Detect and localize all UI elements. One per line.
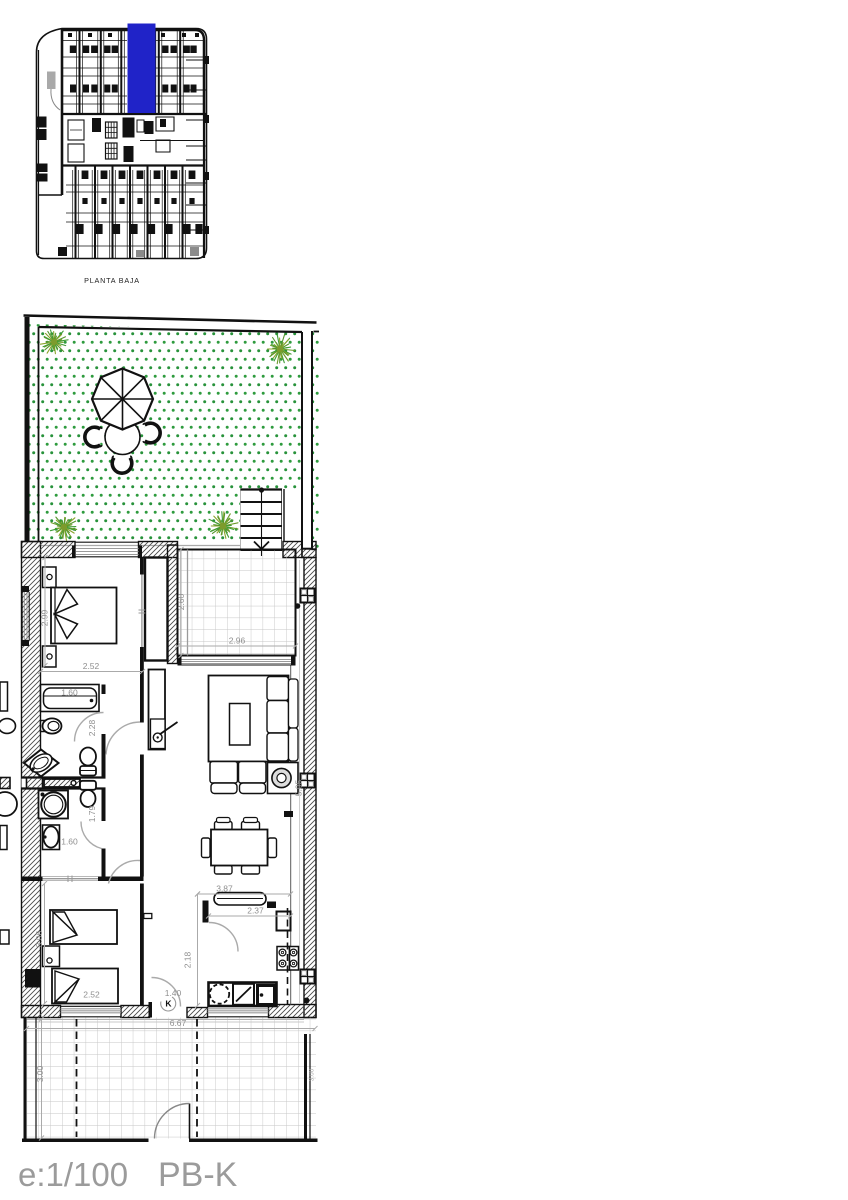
svg-text:2.52: 2.52 [83, 990, 100, 1000]
svg-text:2.99: 2.99 [40, 609, 50, 626]
svg-text:5.05: 5.05 [294, 779, 304, 796]
svg-text:2.28: 2.28 [87, 719, 97, 736]
svg-text:2.96: 2.96 [229, 636, 246, 646]
svg-text:3.00: 3.00 [35, 1065, 45, 1082]
svg-text:PB-K: PB-K [158, 1156, 238, 1194]
svg-text:6.67: 6.67 [170, 1018, 187, 1028]
svg-text:1.79: 1.79 [87, 805, 97, 822]
svg-text:3.87: 3.87 [216, 884, 233, 894]
svg-text:1.60: 1.60 [61, 837, 78, 847]
svg-text:2.37: 2.37 [247, 906, 264, 916]
svg-text:K: K [165, 999, 172, 1009]
svg-text:e:1/100: e:1/100 [18, 1156, 128, 1193]
svg-text:PLANTA BAJA: PLANTA BAJA [84, 276, 140, 285]
svg-text:3.06: 3.06 [34, 930, 44, 947]
svg-text:1.40: 1.40 [165, 988, 182, 998]
svg-text:1.60: 1.60 [61, 688, 78, 698]
svg-text:2.60: 2.60 [176, 593, 186, 610]
svg-text:3.00: 3.00 [309, 1068, 316, 1081]
svg-text:2.52: 2.52 [83, 661, 100, 671]
svg-text:2.18: 2.18 [183, 951, 193, 968]
